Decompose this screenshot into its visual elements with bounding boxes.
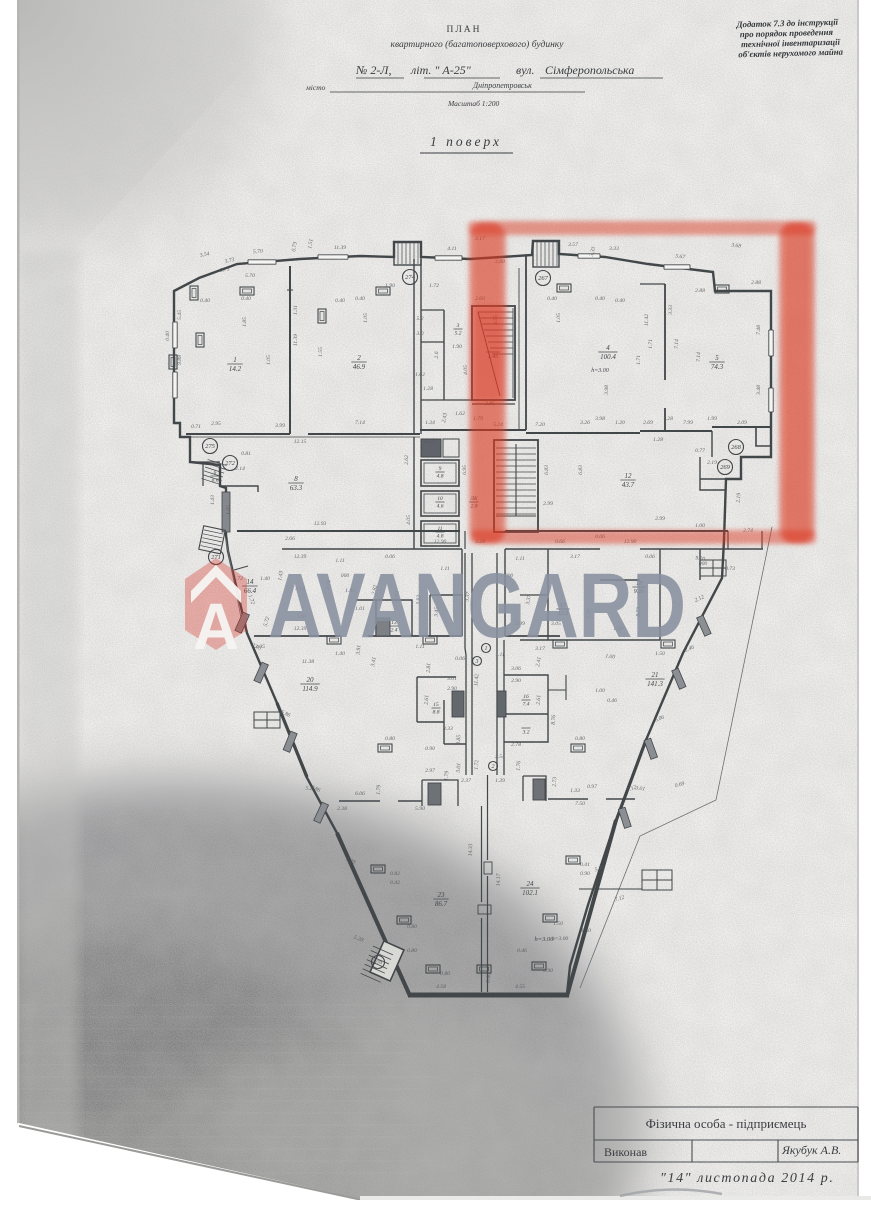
svg-text:2.88: 2.88 (695, 288, 705, 294)
svg-text:1.79: 1.79 (376, 785, 383, 795)
svg-text:3.2: 3.2 (522, 730, 530, 736)
svg-text:Виконав: Виконав (604, 1145, 647, 1159)
svg-text:2: 2 (492, 764, 495, 770)
svg-text:14.2: 14.2 (229, 365, 242, 373)
svg-text:274: 274 (405, 274, 416, 281)
svg-text:0.40: 0.40 (547, 296, 557, 302)
svg-text:1: 1 (233, 356, 237, 364)
svg-text:7.50: 7.50 (575, 801, 585, 807)
svg-text:0.40: 0.40 (241, 296, 251, 302)
svg-text:3.33: 3.33 (608, 246, 619, 252)
svg-text:4.05: 4.05 (406, 515, 412, 525)
svg-text:102.1: 102.1 (522, 889, 538, 897)
svg-text:0.71: 0.71 (191, 424, 201, 430)
svg-text:2.38: 2.38 (337, 806, 347, 812)
svg-text:3.01: 3.01 (446, 676, 457, 682)
svg-text:275: 275 (205, 443, 216, 450)
svg-text:3.01: 3.01 (456, 763, 463, 774)
svg-text:12.15: 12.15 (294, 439, 307, 445)
svg-text:1.28: 1.28 (663, 416, 673, 422)
svg-text:268: 268 (731, 444, 742, 451)
svg-text:1.85: 1.85 (242, 317, 248, 327)
svg-text:4.58: 4.58 (436, 984, 446, 990)
svg-text:0.40: 0.40 (335, 298, 345, 304)
svg-text:6.6: 6.6 (212, 478, 219, 484)
svg-text:6.83: 6.83 (578, 465, 584, 475)
svg-text:0.40: 0.40 (615, 298, 625, 304)
svg-text:1.76: 1.76 (516, 761, 523, 771)
svg-text:12.90: 12.90 (434, 539, 447, 545)
svg-text:вул.: вул. (516, 63, 534, 77)
svg-text:2.37: 2.37 (461, 778, 471, 784)
svg-text:1.28: 1.28 (423, 386, 433, 392)
svg-text:11.39: 11.39 (293, 334, 299, 346)
svg-text:2.99: 2.99 (655, 516, 665, 522)
svg-text:1.31: 1.31 (293, 305, 299, 315)
svg-text:0.41: 0.41 (580, 862, 590, 868)
svg-text:11.39: 11.39 (334, 245, 346, 251)
svg-text:23: 23 (438, 891, 446, 899)
svg-text:1.72: 1.72 (429, 283, 439, 289)
svg-text:16: 16 (523, 694, 529, 700)
svg-text:8.76: 8.76 (551, 715, 558, 725)
svg-text:Сімферопольська: Сімферопольська (545, 63, 634, 77)
svg-text:1.65: 1.65 (226, 505, 232, 515)
svg-text:0.40: 0.40 (200, 298, 210, 304)
svg-text:3.98: 3.98 (594, 416, 605, 422)
svg-text:2.73: 2.73 (552, 777, 559, 787)
svg-text:1.33: 1.33 (570, 788, 580, 794)
svg-text:21: 21 (652, 671, 659, 679)
svg-text:1.28: 1.28 (653, 437, 663, 443)
svg-text:3: 3 (475, 659, 479, 665)
svg-text:3.57: 3.57 (567, 242, 578, 248)
svg-text:11: 11 (437, 526, 442, 532)
svg-text:1.05: 1.05 (266, 355, 272, 365)
svg-text:0.40: 0.40 (355, 296, 365, 302)
svg-text:2.90: 2.90 (447, 686, 457, 692)
svg-text:1.90: 1.90 (385, 283, 395, 289)
svg-text:6.95: 6.95 (462, 465, 468, 475)
svg-text:8: 8 (294, 475, 298, 483)
svg-text:2.61: 2.61 (424, 695, 431, 705)
svg-text:0.40: 0.40 (595, 296, 605, 302)
svg-text:0.80: 0.80 (407, 948, 417, 954)
svg-text:46.9: 46.9 (353, 363, 366, 371)
svg-text:0.40: 0.40 (165, 331, 171, 341)
svg-text:7.48: 7.48 (756, 325, 762, 335)
svg-text:0.97: 0.97 (587, 784, 597, 790)
svg-text:1.71: 1.71 (636, 355, 642, 365)
svg-text:2.66: 2.66 (285, 536, 295, 542)
svg-text:3.26: 3.26 (579, 420, 590, 426)
svg-text:2.81: 2.81 (426, 663, 433, 673)
svg-text:14.17: 14.17 (496, 873, 502, 886)
svg-text:2: 2 (357, 354, 361, 362)
svg-text:1.72: 1.72 (474, 760, 481, 770)
svg-text:7.4: 7.4 (523, 701, 530, 708)
svg-text:6: 6 (214, 470, 217, 476)
svg-text:6.83: 6.83 (544, 465, 550, 475)
svg-text:0.80: 0.80 (385, 736, 395, 742)
svg-text:2.90: 2.90 (511, 678, 521, 684)
svg-text:2.95: 2.95 (211, 421, 221, 427)
svg-text:3.48: 3.48 (756, 385, 762, 396)
svg-text:5.2: 5.2 (455, 331, 462, 337)
svg-text:Фізична особа - підприємець: Фізична особа - підприємець (646, 1116, 807, 1131)
svg-text:1.50: 1.50 (553, 921, 563, 927)
svg-text:"14" листопада 2014 р.: "14" листопада 2014 р. (660, 1171, 834, 1186)
svg-text:24: 24 (527, 880, 535, 888)
svg-text:Якубук А.В.: Якубук А.В. (781, 1143, 841, 1157)
svg-text:20: 20 (307, 676, 315, 684)
svg-text:0.90: 0.90 (580, 871, 590, 877)
svg-text:2.54: 2.54 (495, 754, 505, 760)
svg-text:2.78: 2.78 (511, 742, 521, 748)
svg-text:1.00: 1.00 (695, 523, 705, 529)
svg-text:0.46: 0.46 (607, 698, 617, 704)
svg-text:11.42: 11.42 (473, 673, 480, 686)
svg-text:14.33: 14.33 (468, 843, 474, 856)
svg-text:1.50: 1.50 (581, 928, 591, 934)
svg-text:h=3.00: h=3.00 (552, 936, 569, 942)
svg-text:2.61: 2.61 (536, 695, 543, 705)
svg-text:1.79: 1.79 (444, 771, 451, 781)
svg-text:2.19: 2.19 (736, 493, 743, 503)
svg-text:000: 000 (699, 561, 708, 567)
svg-text:1.00: 1.00 (595, 688, 605, 694)
svg-text:5: 5 (715, 354, 719, 362)
svg-text:3.33: 3.33 (442, 726, 453, 732)
svg-text:6.06: 6.06 (355, 791, 365, 797)
svg-text:141.3: 141.3 (647, 680, 663, 688)
svg-text:ПЛАН: ПЛАН (446, 25, 481, 35)
svg-text:270: 270 (374, 960, 383, 966)
svg-text:267: 267 (538, 275, 549, 282)
svg-text:0.80: 0.80 (407, 924, 417, 930)
svg-text:12: 12 (625, 472, 633, 480)
svg-text:1.34: 1.34 (425, 420, 435, 426)
svg-text:100.4: 100.4 (600, 353, 616, 361)
svg-text:2.6: 2.6 (434, 351, 440, 358)
svg-text:114.9: 114.9 (302, 685, 318, 693)
svg-text:2.62: 2.62 (404, 455, 410, 465)
svg-text:9: 9 (439, 466, 442, 472)
svg-text:квартирного (багатоповерхового: квартирного (багатоповерхового) будинку (391, 39, 565, 50)
svg-text:5.45: 5.45 (177, 310, 183, 320)
svg-text:A: A (193, 589, 239, 663)
svg-text:4.8: 4.8 (437, 473, 444, 480)
svg-text:0.90: 0.90 (425, 746, 435, 752)
svg-text:0.90: 0.90 (543, 968, 553, 974)
svg-text:1.05: 1.05 (363, 313, 369, 323)
svg-text:1.90: 1.90 (452, 344, 462, 350)
svg-text:12.13: 12.13 (424, 439, 437, 445)
svg-text:Дніпропетровськ: Дніпропетровськ (472, 81, 532, 90)
svg-text:5.70: 5.70 (253, 249, 263, 256)
svg-text:7.14: 7.14 (696, 352, 702, 362)
svg-text:h=3.00: h=3.00 (591, 368, 609, 374)
svg-text:1.55: 1.55 (318, 347, 324, 357)
svg-text:269: 269 (720, 464, 731, 471)
svg-text:2.14: 2.14 (235, 466, 245, 472)
svg-text:3.98: 3.98 (604, 385, 610, 396)
svg-text:3.33: 3.33 (668, 305, 674, 316)
svg-text:0.42: 0.42 (390, 880, 400, 886)
svg-text:літ. " А-25": літ. " А-25" (410, 63, 472, 77)
svg-text:7.99: 7.99 (683, 420, 693, 426)
svg-text:5.90: 5.90 (415, 806, 425, 812)
svg-text:1.99: 1.99 (707, 416, 717, 422)
svg-text:3.0: 3.0 (416, 331, 424, 337)
svg-text:7.14: 7.14 (355, 420, 365, 426)
svg-text:15: 15 (433, 702, 439, 708)
svg-text:4.6: 4.6 (437, 503, 444, 510)
svg-text:5.70: 5.70 (245, 273, 255, 279)
svg-text:0.81: 0.81 (241, 451, 251, 457)
svg-text:1.39: 1.39 (495, 778, 505, 784)
svg-text:2.97: 2.97 (425, 768, 435, 774)
svg-text:11.42: 11.42 (644, 314, 650, 326)
svg-text:1.62: 1.62 (455, 411, 465, 417)
svg-text:0.85: 0.85 (456, 735, 463, 745)
svg-text:0.73: 0.73 (725, 566, 735, 572)
svg-text:місто: місто (305, 83, 326, 92)
svg-text:3.99: 3.99 (274, 423, 285, 429)
svg-text:4.11: 4.11 (447, 246, 457, 252)
svg-text:1.43: 1.43 (210, 495, 216, 505)
svg-text:7.20: 7.20 (535, 422, 545, 428)
svg-text:0.82: 0.82 (390, 871, 400, 877)
svg-text:AVANGARD: AVANGARD (268, 555, 686, 657)
svg-text:Масштаб 1:200: Масштаб 1:200 (447, 99, 500, 108)
svg-text:0.46: 0.46 (486, 973, 493, 983)
svg-text:11.38: 11.38 (302, 659, 314, 665)
svg-text:2.09: 2.09 (737, 420, 747, 426)
svg-text:4.55: 4.55 (515, 984, 525, 990)
svg-text:2.69: 2.69 (643, 420, 653, 426)
svg-text:8.8: 8.8 (433, 710, 440, 716)
svg-text:10: 10 (437, 496, 443, 502)
svg-text:74.3: 74.3 (711, 363, 724, 371)
svg-text:12.93: 12.93 (314, 521, 327, 527)
svg-text:272: 272 (225, 460, 236, 467)
svg-text:№ 2-Л,: № 2-Л, (355, 63, 391, 77)
svg-text:1 поверх: 1 поверх (430, 134, 502, 149)
svg-text:0.80: 0.80 (440, 971, 450, 977)
svg-text:63.3: 63.3 (290, 484, 303, 492)
svg-text:1.71: 1.71 (648, 339, 654, 349)
svg-text:4: 4 (606, 344, 610, 352)
svg-text:2.19: 2.19 (707, 460, 717, 466)
svg-text:43.7: 43.7 (622, 481, 635, 489)
svg-text:0.46: 0.46 (517, 948, 527, 954)
svg-text:3.06: 3.06 (510, 666, 521, 672)
svg-text:14: 14 (247, 578, 255, 586)
svg-text:0.80: 0.80 (575, 736, 585, 742)
svg-text:4.05: 4.05 (463, 365, 469, 375)
svg-text:2.99: 2.99 (543, 501, 553, 507)
svg-text:5.2: 5.2 (417, 316, 424, 322)
svg-text:7.14: 7.14 (674, 339, 680, 349)
svg-text:3: 3 (456, 323, 460, 329)
svg-text:2.88: 2.88 (751, 280, 761, 286)
svg-text:86.7: 86.7 (435, 900, 448, 908)
svg-text:0.77: 0.77 (695, 448, 705, 454)
svg-text:1.62: 1.62 (415, 372, 425, 378)
svg-text:9.88: 9.88 (177, 355, 183, 365)
svg-text:1.20: 1.20 (615, 420, 625, 426)
svg-text:1.05: 1.05 (556, 313, 562, 323)
